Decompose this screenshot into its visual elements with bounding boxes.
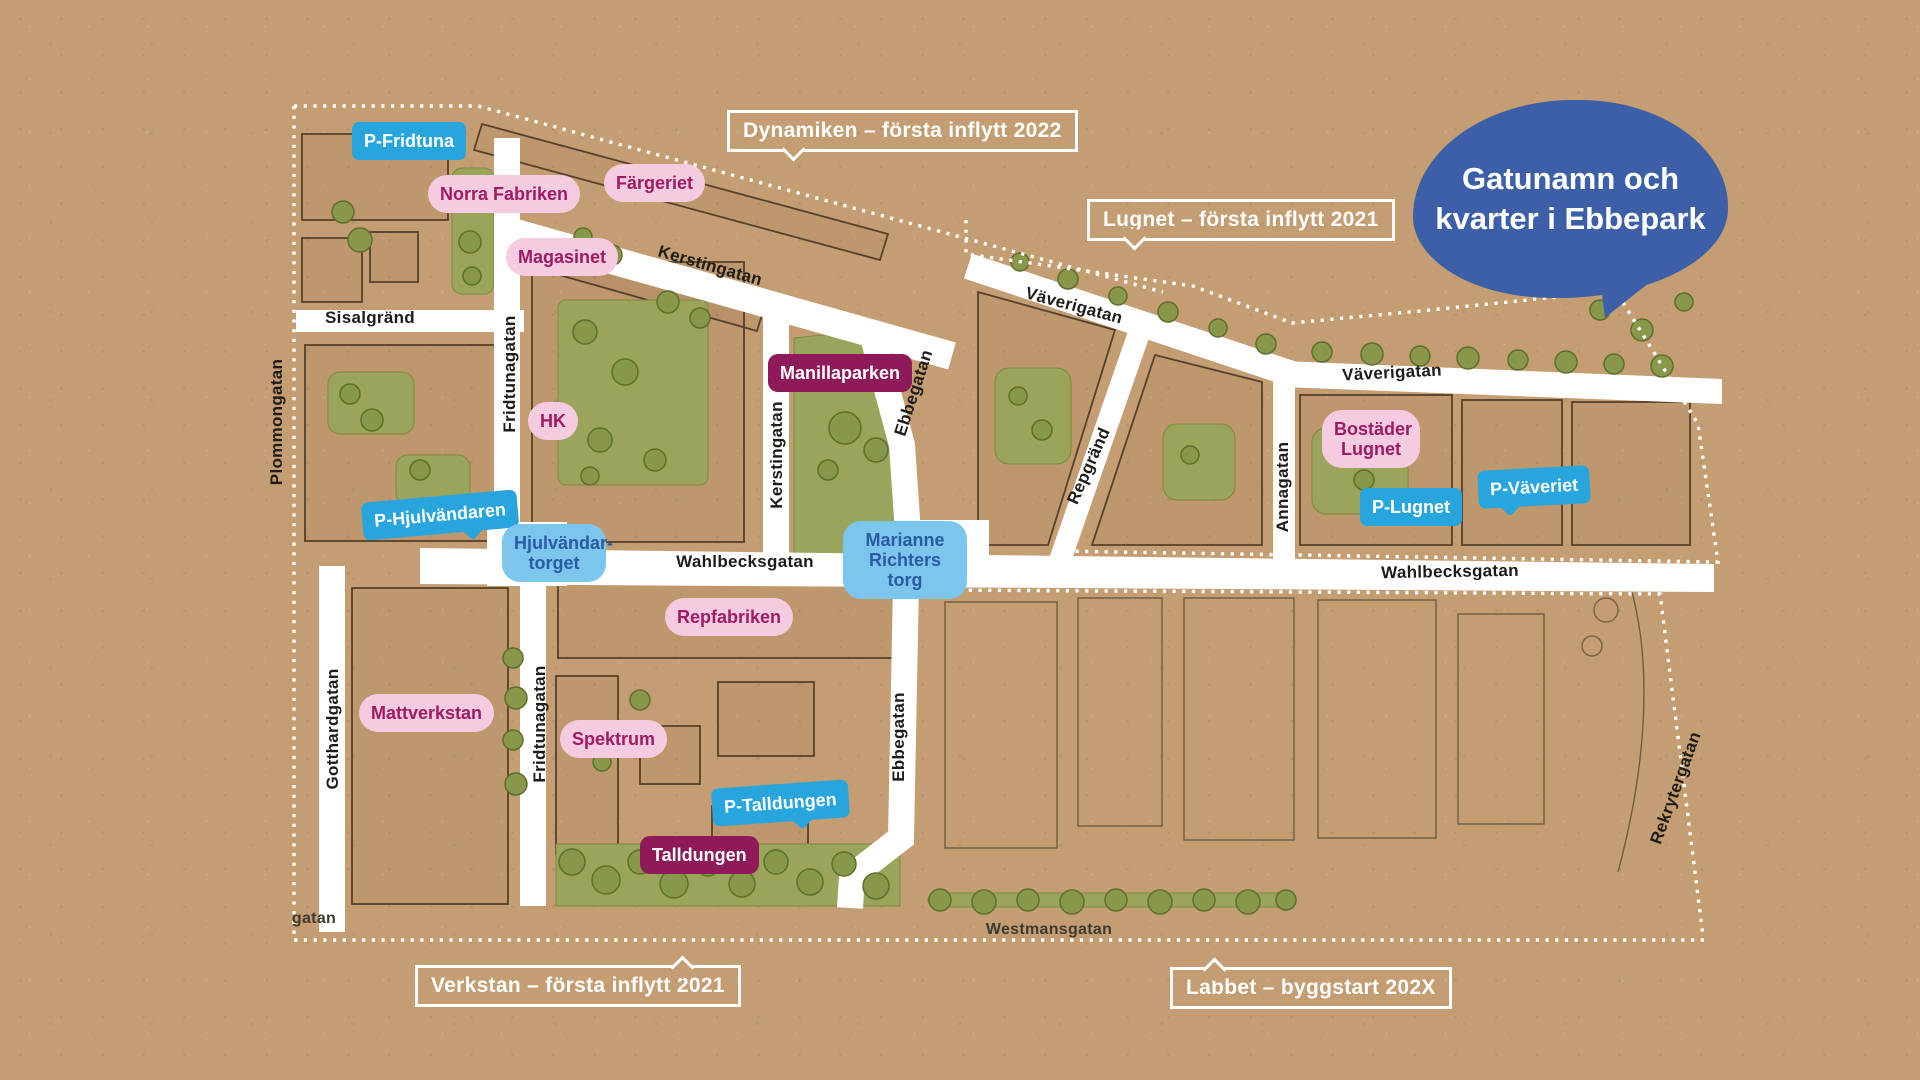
bubble-hjulvandartorget: Hjulvändar-torget bbox=[502, 524, 606, 582]
street-label-annagatan: Annagatan bbox=[1273, 442, 1293, 533]
street-label-gatan-fragment: gatan bbox=[292, 910, 336, 928]
district-label-dynamiken: Dynamiken – första inflytt 2022 bbox=[727, 110, 1078, 152]
street-label-wahlbecksgatan-east: Wahlbecksgatan bbox=[1381, 561, 1519, 583]
street-label-sisalgrand: Sisalgränd bbox=[325, 308, 415, 328]
bubble-repfabriken: Repfabriken bbox=[665, 598, 793, 636]
street-label-plommongatan: Plommongatan bbox=[267, 359, 287, 485]
bubble-norra-fabriken: Norra Fabriken bbox=[428, 175, 580, 213]
street-label-westmansgatan: Westmansgatan bbox=[986, 921, 1112, 939]
street-label-gotthardgatan: Gotthardgatan bbox=[323, 668, 343, 789]
street-label-fridtunagatan-south: Fridtunagatan bbox=[530, 665, 550, 782]
street-label-kerstingatan-vertical: Kerstingatan bbox=[767, 401, 787, 509]
bubble-p-fridtuna: P-Fridtuna bbox=[352, 122, 466, 160]
bubble-spektrum: Spektrum bbox=[560, 720, 667, 758]
street-label-fridtunagatan-north: Fridtunagatan bbox=[500, 315, 520, 432]
district-label-verkstan: Verkstan – första inflytt 2021 bbox=[415, 965, 741, 1007]
street-label-ebbegatan-south: Ebbegatan bbox=[889, 692, 909, 782]
district-label-lugnet: Lugnet – första inflytt 2021 bbox=[1087, 199, 1395, 241]
bubble-manillaparken: Manillaparken bbox=[768, 354, 912, 392]
bubble-p-vaveriet: P-Väveriet bbox=[1477, 465, 1591, 509]
bubble-mattverkstan: Mattverkstan bbox=[359, 694, 494, 732]
bubble-magasinet: Magasinet bbox=[506, 238, 618, 276]
district-label-labbet: Labbet – byggstart 202X bbox=[1170, 967, 1452, 1009]
street-label-wahlbecksgatan-west: Wahlbecksgatan bbox=[676, 552, 814, 572]
bubble-p-lugnet: P-Lugnet bbox=[1360, 488, 1462, 526]
bubble-fargeriet: Färgeriet bbox=[604, 164, 705, 202]
map-title-line2: kvarter i Ebbepark bbox=[1435, 199, 1706, 239]
ebbepark-map-poster: Gatunamn och kvarter i Ebbepark Dynamike… bbox=[0, 0, 1920, 1080]
bubble-talldungen: Talldungen bbox=[640, 836, 759, 874]
bubble-bostader-lugnet: Bostäder Lugnet bbox=[1322, 410, 1420, 468]
map-title-line1: Gatunamn och bbox=[1462, 159, 1679, 199]
bubble-hk: HK bbox=[528, 402, 578, 440]
bubble-marianne-richters-torg: Marianne Richters torg bbox=[843, 521, 967, 599]
